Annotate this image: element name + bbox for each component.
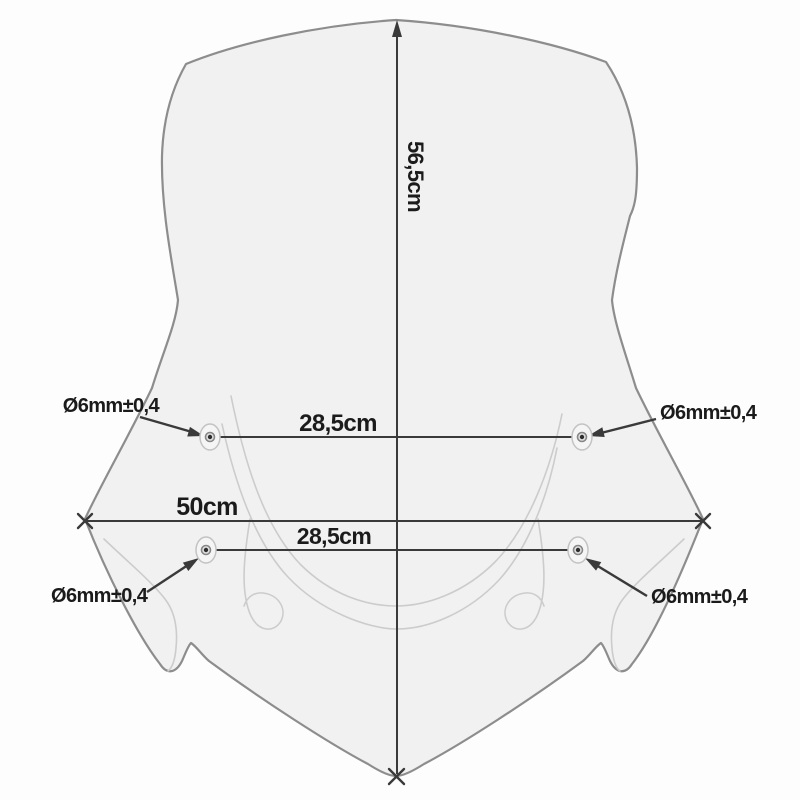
bottom-right-hole-label: Ø6mm±0,4 <box>651 586 749 608</box>
diagram-svg: 56,5cm 50cm 28,5cm 28,5cm <box>0 0 800 800</box>
bottom-hole-span-label: 28,5cm <box>297 523 372 549</box>
windscreen-outline <box>85 20 703 776</box>
width-label: 50cm <box>176 493 238 521</box>
top-left-hole-label: Ø6mm±0,4 <box>63 395 161 417</box>
windscreen-dimension-diagram: 56,5cm 50cm 28,5cm 28,5cm <box>0 0 800 800</box>
bottom-left-hole-label: Ø6mm±0,4 <box>51 585 149 607</box>
mounting-hole-top-left <box>200 424 220 450</box>
top-right-hole-label: Ø6mm±0,4 <box>660 402 758 424</box>
mounting-hole-bottom-left <box>196 537 216 563</box>
mounting-hole-bottom-right <box>568 537 588 563</box>
top-hole-span-label: 28,5cm <box>299 410 377 437</box>
mounting-hole-top-right <box>572 424 592 450</box>
height-label: 56,5cm <box>403 141 428 212</box>
